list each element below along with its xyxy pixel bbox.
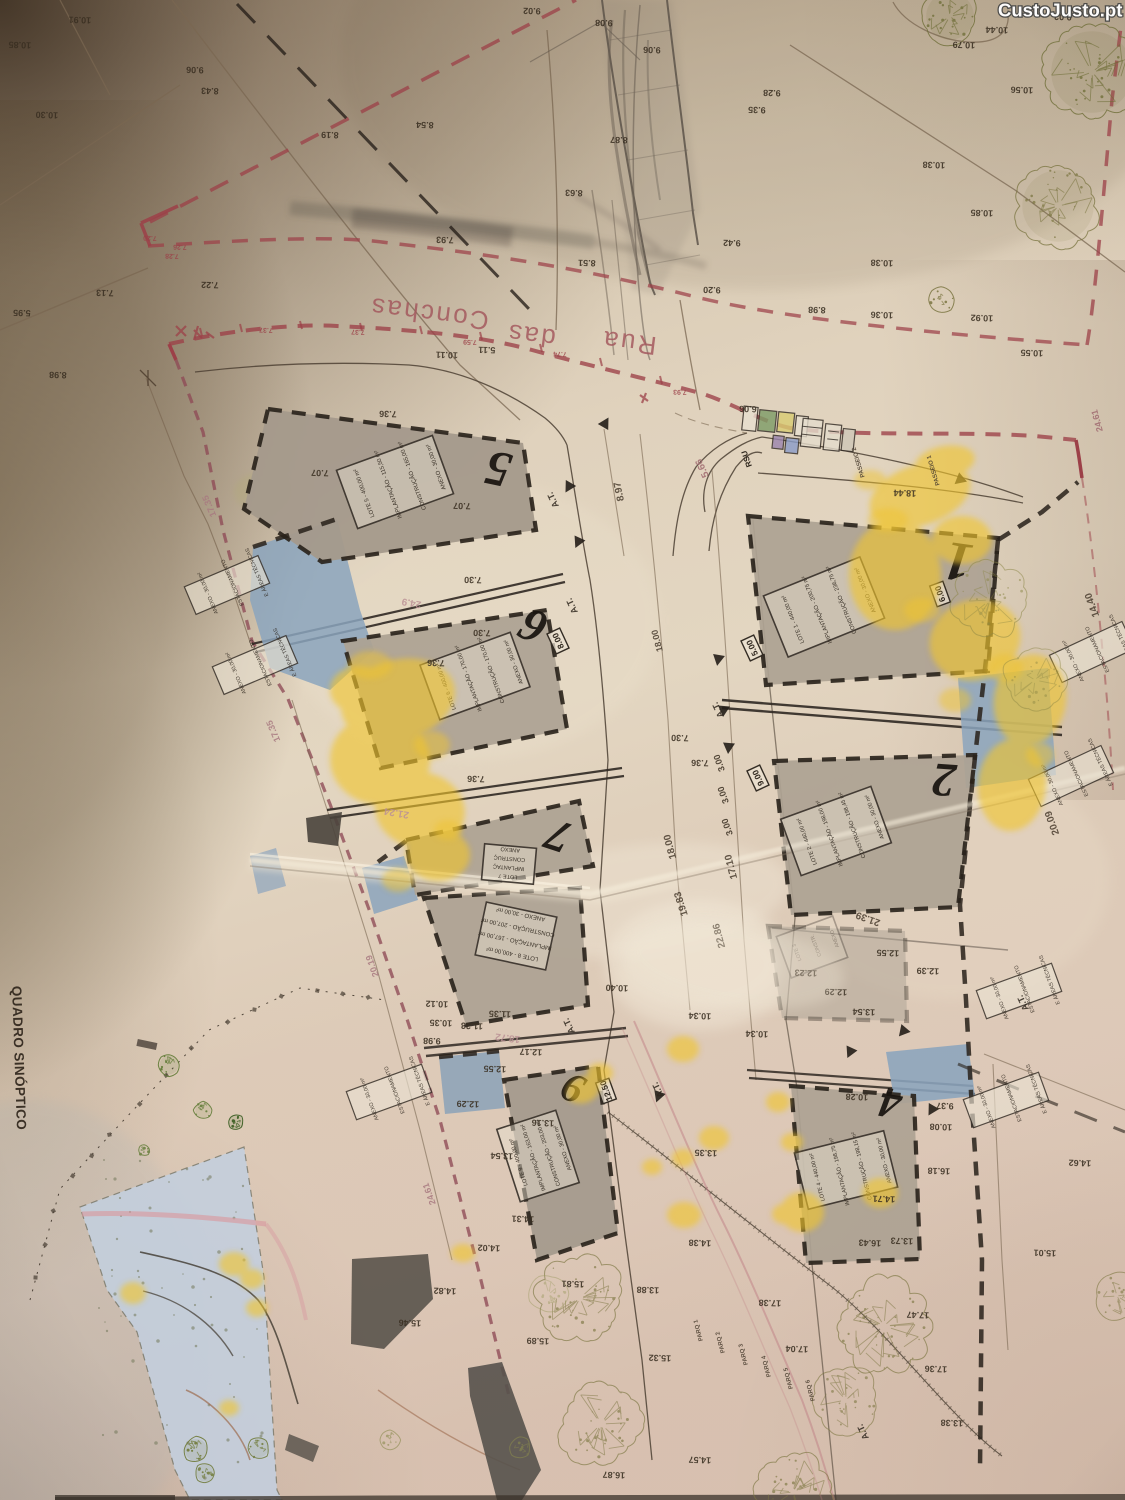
svg-text:14.82: 14.82: [433, 1286, 456, 1297]
svg-text:7.13: 7.13: [96, 288, 114, 299]
svg-text:10.40: 10.40: [605, 983, 628, 994]
svg-text:18.44: 18.44: [893, 488, 916, 499]
svg-text:13.16: 13.16: [531, 1118, 554, 1129]
svg-text:14.57: 14.57: [688, 1455, 711, 1466]
svg-text:7.26: 7.26: [173, 243, 187, 250]
svg-text:14.62: 14.62: [1068, 1158, 1091, 1169]
svg-text:5.11: 5.11: [478, 345, 495, 356]
svg-text:7.36: 7.36: [691, 758, 709, 769]
svg-text:8.51: 8.51: [578, 258, 596, 269]
svg-text:11.35: 11.35: [489, 1009, 511, 1020]
svg-text:10.85: 10.85: [970, 208, 993, 219]
svg-text:13.38: 13.38: [940, 1418, 963, 1429]
svg-text:14.71: 14.71: [872, 1194, 895, 1205]
svg-text:10.91: 10.91: [68, 15, 91, 26]
svg-text:10.34: 10.34: [688, 1011, 711, 1022]
svg-text:15.01: 15.01: [1033, 1248, 1056, 1259]
svg-text:15.81: 15.81: [561, 1279, 584, 1290]
svg-text:12.55: 12.55: [876, 948, 899, 959]
svg-text:7.37: 7.37: [259, 326, 273, 333]
svg-text:10.12: 10.12: [425, 999, 448, 1010]
svg-text:15.46: 15.46: [398, 1318, 421, 1329]
svg-text:13.54: 13.54: [852, 1007, 875, 1018]
svg-text:das: das: [505, 318, 558, 354]
svg-text:12.17: 12.17: [519, 1047, 542, 1058]
svg-text:10.30: 10.30: [35, 110, 58, 121]
svg-text:9.06: 9.06: [186, 65, 204, 76]
svg-text:10.44: 10.44: [985, 25, 1008, 36]
svg-text:13.88: 13.88: [636, 1285, 659, 1296]
svg-text:7.07: 7.07: [453, 501, 471, 512]
svg-text:9.02: 9.02: [523, 6, 541, 17]
svg-text:9.98: 9.98: [423, 1036, 441, 1047]
svg-text:10.28: 10.28: [845, 1092, 868, 1103]
svg-text:10.85: 10.85: [8, 40, 31, 51]
svg-text:16.18: 16.18: [927, 1166, 950, 1177]
svg-text:7.93: 7.93: [673, 388, 687, 395]
svg-text:8.43: 8.43: [201, 86, 219, 97]
svg-text:10.38: 10.38: [870, 258, 893, 269]
svg-text:9.06: 9.06: [643, 45, 661, 56]
svg-text:7.30: 7.30: [473, 628, 491, 639]
svg-text:9.37: 9.37: [936, 1101, 954, 1112]
svg-text:8.19: 8.19: [321, 130, 339, 141]
svg-text:9.08: 9.08: [595, 18, 613, 29]
svg-text:10.34: 10.34: [745, 1029, 768, 1040]
svg-text:7.20: 7.20: [143, 234, 157, 241]
svg-text:10.11: 10.11: [436, 350, 458, 361]
svg-text:7.36: 7.36: [379, 409, 397, 420]
svg-text:CustoJusto.pt: CustoJusto.pt: [998, 0, 1122, 21]
svg-text:7.36: 7.36: [427, 658, 445, 669]
svg-text:13.54: 13.54: [490, 1151, 513, 1162]
svg-text:17.47: 17.47: [906, 1310, 929, 1321]
svg-text:8.54: 8.54: [416, 120, 434, 131]
svg-text:5.95: 5.95: [13, 308, 31, 319]
svg-text:7.93: 7.93: [436, 235, 454, 246]
svg-text:10.56: 10.56: [1010, 85, 1033, 96]
svg-text:10.55: 10.55: [1020, 348, 1043, 359]
svg-text:12.39: 12.39: [916, 966, 939, 977]
svg-text:16.43: 16.43: [858, 1238, 881, 1249]
svg-text:13.73: 13.73: [890, 1236, 913, 1247]
svg-text:8.87: 8.87: [610, 135, 628, 146]
svg-text:9.42: 9.42: [723, 238, 741, 249]
svg-text:8.98: 8.98: [49, 370, 67, 381]
svg-text:14.02: 14.02: [477, 1243, 500, 1254]
svg-text:16.87: 16.87: [602, 1470, 625, 1481]
svg-text:9.35: 9.35: [748, 105, 766, 116]
svg-text:17.04: 17.04: [785, 1344, 808, 1355]
svg-text:8.63: 8.63: [565, 188, 583, 199]
svg-text:17.38: 17.38: [758, 1298, 781, 1309]
svg-text:10.79: 10.79: [952, 40, 975, 51]
svg-text:10.35: 10.35: [429, 1018, 452, 1029]
svg-text:7.30: 7.30: [671, 733, 689, 744]
svg-text:9.28: 9.28: [763, 88, 781, 99]
svg-text:8.98: 8.98: [808, 305, 826, 316]
svg-text:7.28: 7.28: [165, 252, 179, 259]
svg-text:15.32: 15.32: [648, 1353, 671, 1364]
svg-text:12.55: 12.55: [483, 1064, 506, 1075]
svg-text:7.59: 7.59: [463, 338, 477, 345]
svg-text:9.20: 9.20: [703, 285, 721, 296]
svg-text:6.06: 6.06: [739, 404, 757, 415]
svg-text:17.36: 17.36: [924, 1364, 947, 1375]
svg-text:7.30: 7.30: [464, 575, 482, 586]
svg-text:10.92: 10.92: [970, 313, 993, 324]
svg-text:10.38: 10.38: [922, 160, 945, 171]
svg-text:14.31: 14.31: [511, 1214, 534, 1225]
svg-text:13.35: 13.35: [694, 1148, 717, 1159]
svg-text:12.29: 12.29: [456, 1099, 479, 1110]
svg-text:11.33: 11.33: [461, 1021, 483, 1032]
svg-text:10.36: 10.36: [870, 310, 893, 321]
svg-text:10.08: 10.08: [929, 1122, 952, 1133]
svg-text:7.36: 7.36: [467, 774, 485, 785]
svg-text:7.22: 7.22: [201, 280, 219, 291]
svg-text:7.07: 7.07: [311, 468, 329, 479]
svg-text:14.38: 14.38: [688, 1238, 711, 1249]
svg-text:15.89: 15.89: [526, 1336, 549, 1347]
svg-text:7.37: 7.37: [351, 328, 365, 335]
svg-text:2: 2: [930, 752, 959, 807]
svg-text:7.74: 7.74: [553, 350, 567, 357]
